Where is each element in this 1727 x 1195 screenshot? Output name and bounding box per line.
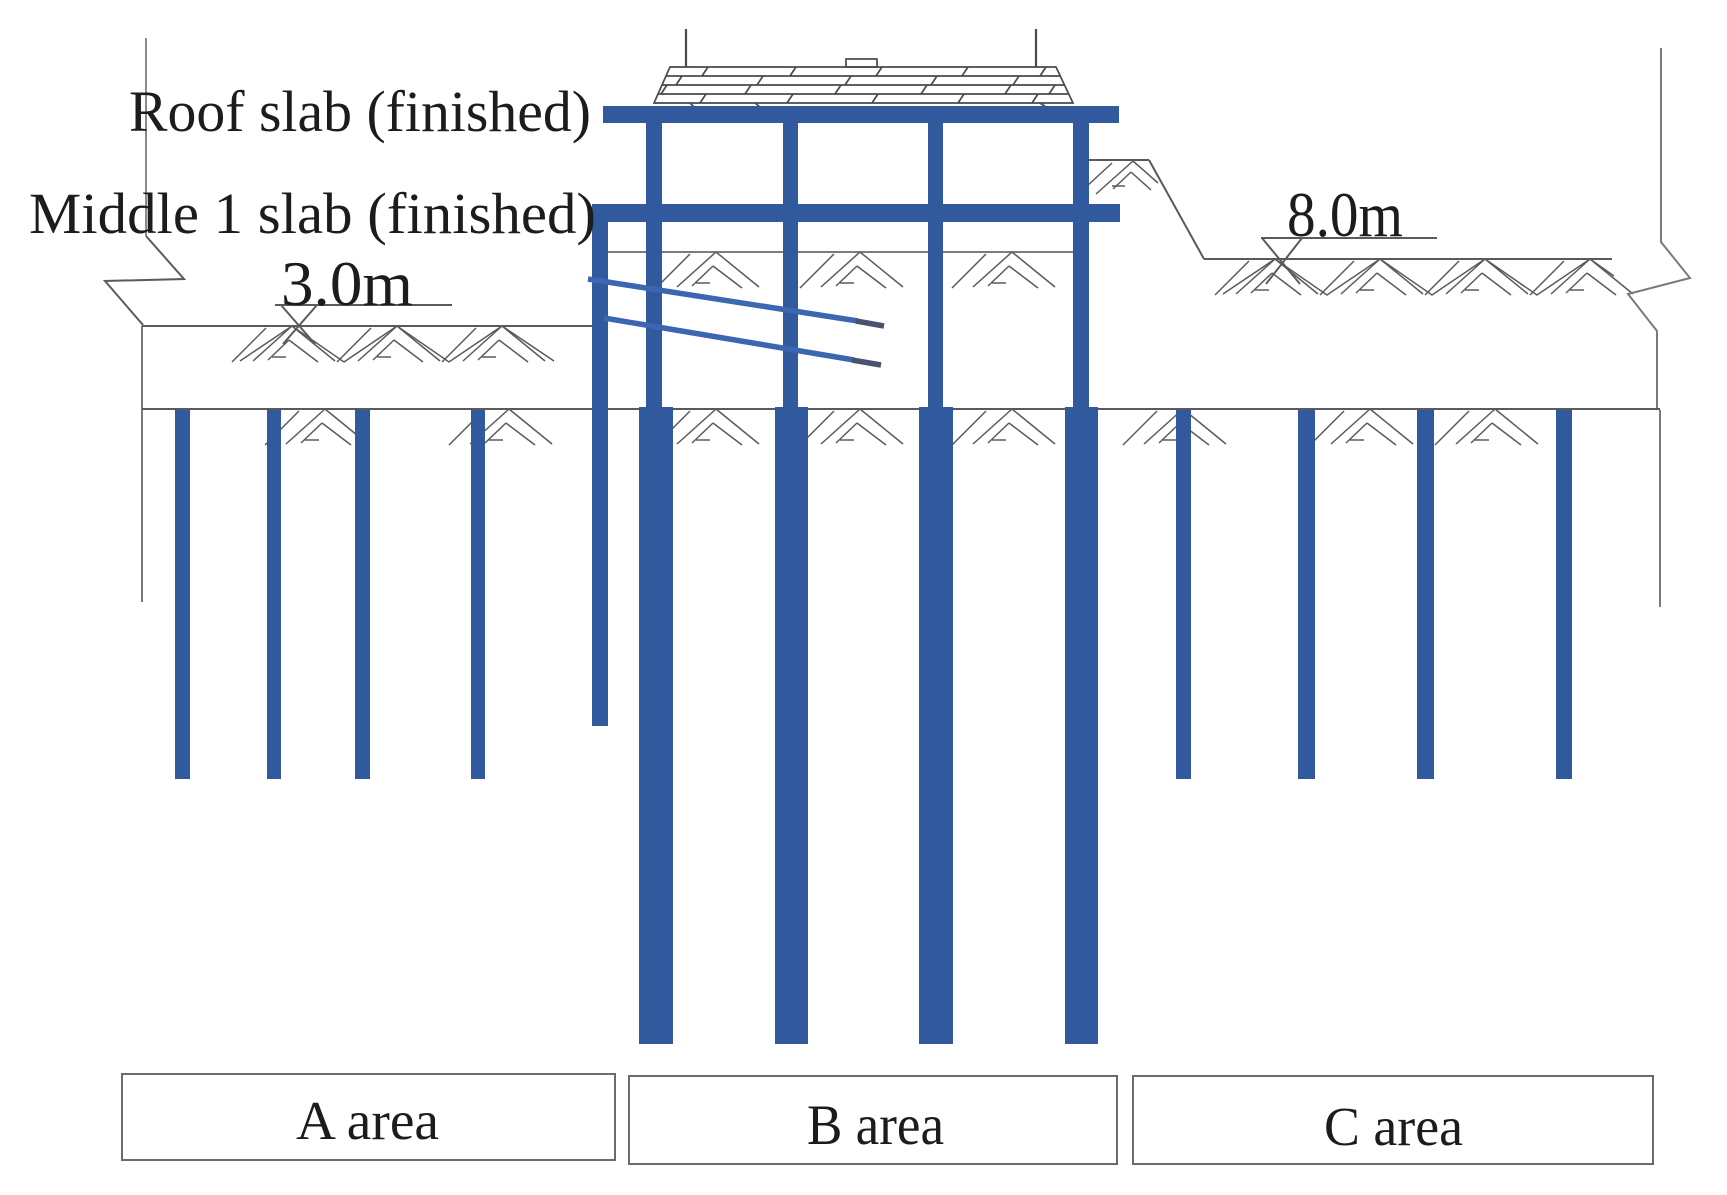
svg-text:8.0m: 8.0m bbox=[1287, 180, 1403, 250]
svg-text:Middle 1 slab (finished): Middle 1 slab (finished) bbox=[29, 181, 596, 246]
svg-text:3.0m: 3.0m bbox=[281, 249, 413, 319]
svg-text:A area: A area bbox=[296, 1090, 439, 1151]
svg-text:B area: B area bbox=[807, 1094, 944, 1157]
svg-text:C area: C area bbox=[1324, 1096, 1463, 1157]
svg-text:Roof slab (finished): Roof slab (finished) bbox=[129, 79, 591, 144]
